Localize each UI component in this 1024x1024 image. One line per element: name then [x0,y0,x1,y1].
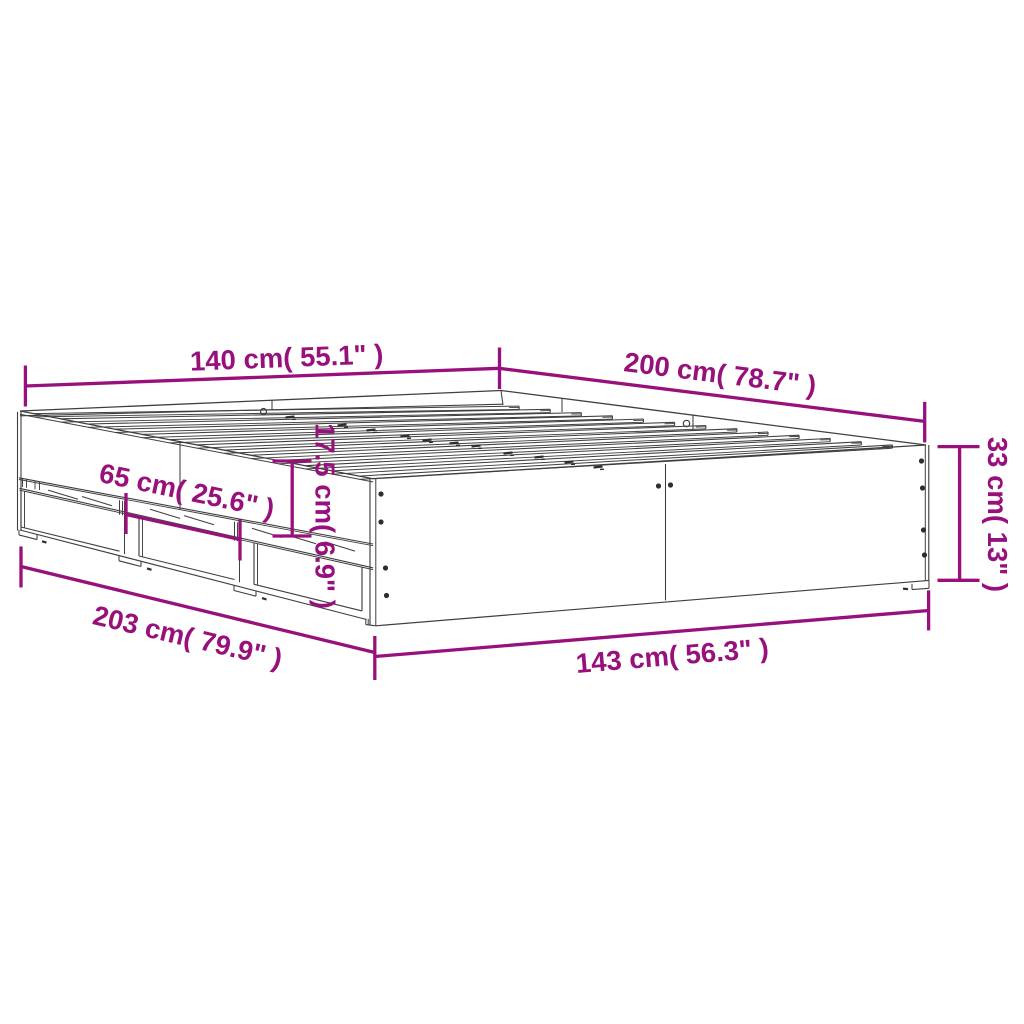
svg-text:33 cm( 13" ): 33 cm( 13" ) [982,437,1013,592]
svg-text:17.5 cm( 6.9" ): 17.5 cm( 6.9" ) [310,423,341,609]
